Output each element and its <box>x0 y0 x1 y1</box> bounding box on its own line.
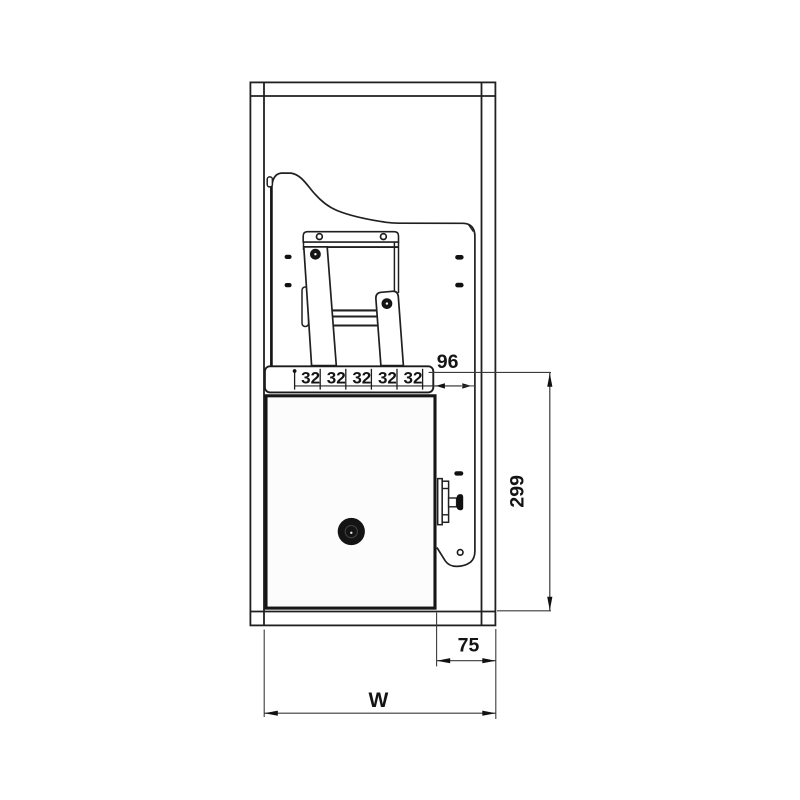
svg-text:32: 32 <box>327 368 346 387</box>
svg-text:32: 32 <box>301 368 320 387</box>
svg-text:W: W <box>368 689 388 712</box>
svg-text:75: 75 <box>458 634 480 656</box>
svg-text:299: 299 <box>507 475 529 508</box>
svg-text:32: 32 <box>378 368 397 387</box>
svg-text:32: 32 <box>352 368 371 387</box>
svg-text:96: 96 <box>437 351 459 373</box>
svg-text:32: 32 <box>404 368 423 387</box>
